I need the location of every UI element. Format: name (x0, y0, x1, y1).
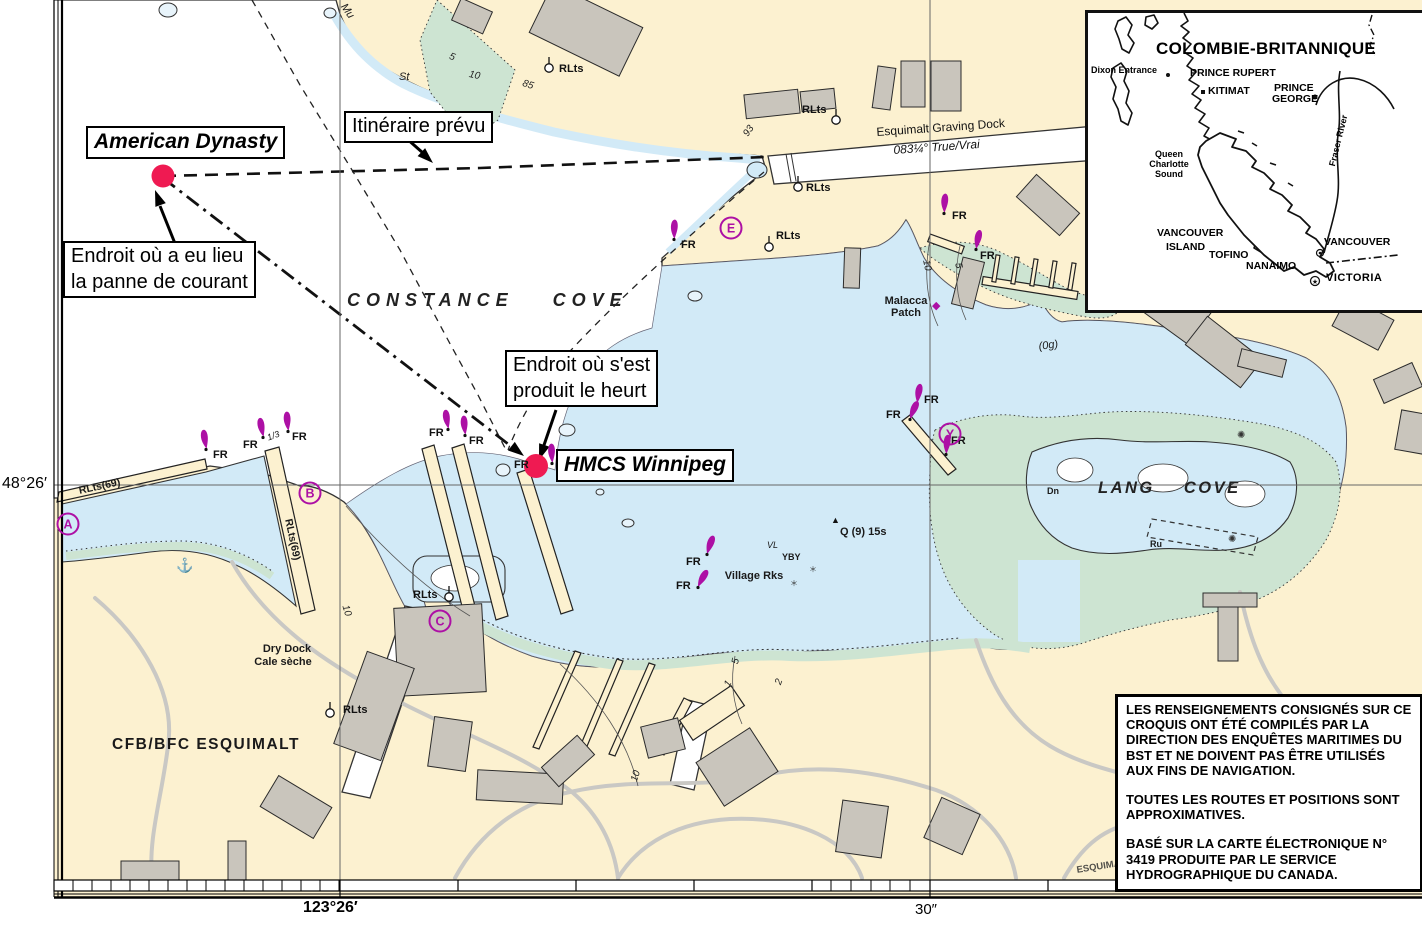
chart-symbol-icon: ＊ (790, 579, 798, 588)
american-dynasty-label: American Dynasty (86, 126, 285, 159)
rlts-light-icon (326, 709, 334, 717)
collision-line1: Endroit où s'est (513, 353, 650, 379)
rlts-light-icon (545, 64, 553, 72)
nautical-chart: FRFRFRFRFRFRFRFRFRFRFRFRFRFRRLtsRLtsRLts… (0, 0, 1422, 931)
chart-symbol-icon: ＊ (809, 565, 817, 574)
inset-label: KITIMAT (1208, 86, 1250, 97)
inset-label: Dixon Entrance (1091, 66, 1157, 75)
american-dynasty-text: American Dynasty (94, 130, 277, 153)
letter-marker-E-label: E (727, 222, 735, 236)
fr-beacon-label: FR (213, 449, 228, 461)
planned-route-text: Itinéraire prévu (352, 115, 485, 137)
fr-beacon-label: FR (514, 459, 529, 471)
hmcs-winnipeg-label: HMCS Winnipeg (556, 449, 734, 482)
map-label: Dn (1047, 487, 1059, 496)
map-label: Dry Dock (263, 644, 311, 655)
rlts-light-label: RLts (413, 589, 437, 601)
latitude-label: 48°26′ (2, 475, 47, 493)
rlts-light-icon (832, 116, 840, 124)
map-label: St (399, 72, 409, 83)
disclaimer-para-1: LES RENSEIGNEMENTS CONSIGNÉS SUR CE CROQ… (1126, 702, 1412, 778)
fr-beacon-label: FR (886, 409, 901, 421)
inset-label: Sound (1155, 170, 1183, 179)
map-label: Village Rks (725, 571, 784, 582)
letter-marker-B-label: B (305, 487, 314, 501)
inset-title: COLOMBIE-BRITANNIQUE (1156, 40, 1376, 57)
inset-label: GEORGE (1272, 94, 1318, 105)
inset-map-bc: ★ COLOMBIE-BRITANNIQUE Dixon EntrancePRI… (1085, 10, 1422, 313)
map-label: VL (767, 541, 778, 550)
power-failure-line2: la panne de courant (71, 270, 248, 296)
fr-beacon-label: FR (676, 580, 691, 592)
map-label: Ru (1150, 540, 1162, 549)
rlts-light-label: RLts (343, 704, 367, 716)
disclaimer-para-3: BASÉ SUR LA CARTE ÉLECTRONIQUE N° 3419 P… (1126, 836, 1412, 882)
map-label: LANG COVE (1098, 480, 1241, 497)
fr-beacon-label: FR (952, 210, 967, 222)
power-failure-label: Endroit où a eu lieu la panne de courant (63, 241, 256, 298)
fr-beacon-label: FR (924, 394, 939, 406)
fr-beacon-label: FR (980, 250, 995, 262)
power-failure-dot (152, 165, 175, 188)
rlts-light-label: RLts (806, 182, 830, 194)
fr-beacon-label: FR (469, 435, 484, 447)
svg-text:★: ★ (1312, 278, 1318, 286)
letter-marker-C-label: C (435, 615, 444, 629)
disclaimer-box: LES RENSEIGNEMENTS CONSIGNÉS SUR CE CROQ… (1115, 694, 1422, 892)
collision-label: Endroit où s'est produit le heurt (505, 350, 658, 407)
map-label: Q (9) 15s (840, 527, 886, 538)
rlts-light-label: RLts (776, 230, 800, 242)
inset-label: VICTORIA (1326, 273, 1382, 284)
chart-symbol-icon: ✺ (1237, 430, 1245, 441)
fr-beacon-label: FR (681, 239, 696, 251)
rlts-light-label: RLts (802, 104, 826, 116)
map-label: 10 (468, 70, 481, 82)
map-label: CONSTANCE COVE (347, 291, 628, 309)
map-label: CFB/BFC ESQUIMALT (112, 737, 300, 753)
inset-label: Charlotte (1149, 160, 1189, 169)
collision-line2: produit le heurt (513, 379, 650, 405)
inset-label: NANAIMO (1246, 261, 1296, 272)
rlts-light-icon (794, 183, 802, 191)
map-label: Patch (891, 308, 921, 319)
hmcs-winnipeg-text: HMCS Winnipeg (564, 453, 726, 476)
inset-label: VANCOUVER (1157, 228, 1223, 239)
disclaimer-para-2: TOUTES LES ROUTES ET POSITIONS SONT APPR… (1126, 792, 1412, 822)
map-label: 10 (920, 259, 932, 272)
longitude-seconds-label: 30″ (915, 901, 937, 918)
rlts-light-icon (445, 593, 453, 601)
map-label: Malacca (885, 296, 928, 307)
inset-label: Queen (1155, 150, 1183, 159)
rlts-light-label: RLts (559, 63, 583, 75)
map-label: Cale sèche (254, 657, 311, 668)
fr-beacon-label: FR (292, 431, 307, 443)
rlts-light-icon (765, 243, 773, 251)
chart-symbol-icon: ⚓ (176, 557, 193, 574)
inset-label: VANCOUVER (1324, 237, 1390, 248)
chart-symbol-icon: ◆ (932, 300, 941, 312)
inset-label: PRINCE RUPERT (1190, 68, 1276, 79)
fr-beacon-label: FR (243, 439, 258, 451)
inset-label: TOFINO (1209, 250, 1248, 261)
power-failure-line1: Endroit où a eu lieu (71, 244, 248, 270)
map-label: YBY (782, 553, 801, 562)
fr-beacon-label: FR (429, 427, 444, 439)
chart-symbol-icon: ▲ (831, 515, 840, 525)
letter-marker-A-label: A (63, 518, 72, 532)
inset-label: ISLAND (1166, 242, 1205, 253)
letter-marker-Y-label: Y (946, 428, 955, 442)
fr-beacon-label: FR (686, 556, 701, 568)
inset-label: PRINCE (1274, 83, 1314, 94)
planned-route-label: Itinéraire prévu (344, 111, 493, 143)
chart-symbol-icon: ✺ (1228, 534, 1236, 545)
longitude-label: 123°26′ (303, 899, 358, 917)
